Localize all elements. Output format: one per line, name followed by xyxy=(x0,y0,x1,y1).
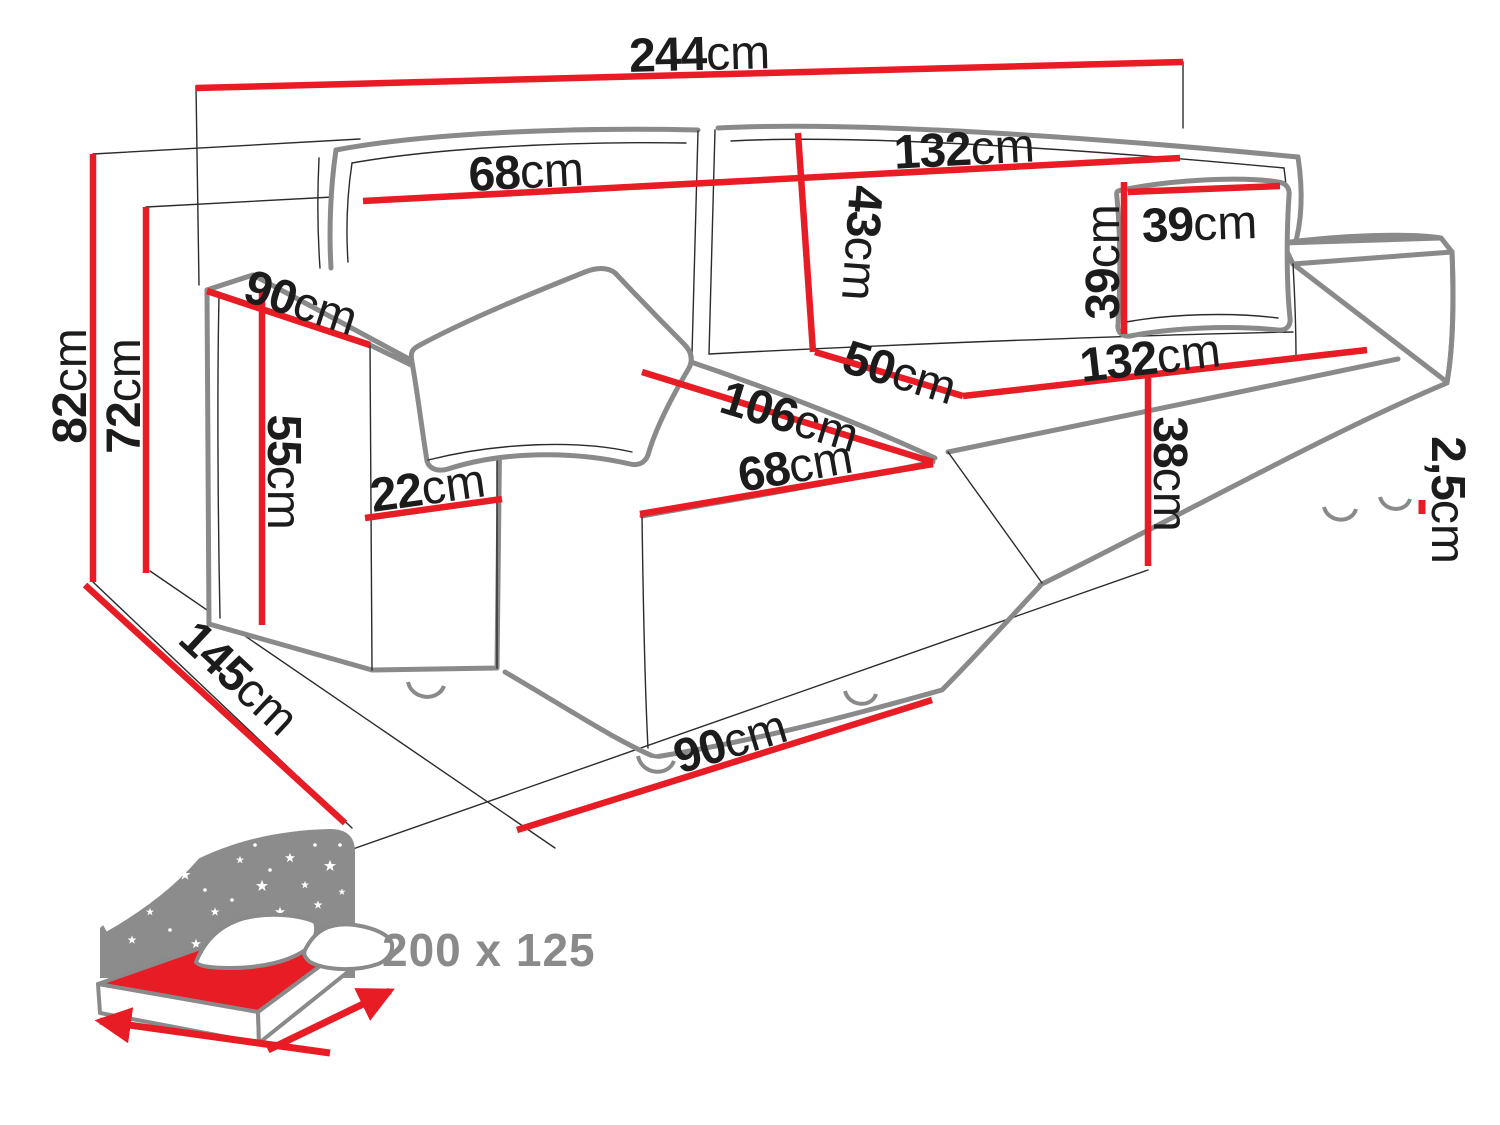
deco-shape xyxy=(146,197,333,207)
label-total-width: 244cm xyxy=(628,26,770,83)
label-backrest-left-width: 68cm xyxy=(467,143,585,202)
deco-shape xyxy=(347,163,352,262)
throw-pillow-left xyxy=(411,269,691,471)
deco-shape xyxy=(642,516,648,748)
deco-shape xyxy=(196,86,199,285)
deco-shape xyxy=(948,452,1042,583)
label-total-height: 82cm xyxy=(44,328,97,443)
label-back-height: 72cm xyxy=(98,338,151,453)
deco-shape xyxy=(338,843,342,847)
deco-shape xyxy=(1324,507,1356,520)
sofa-dimension-drawing: 244cm 68cm 132cm 43cm 50cm 132cm 106cm 6… xyxy=(0,0,1500,1125)
label-seat-height: 38cm xyxy=(1143,416,1196,531)
deco-shape xyxy=(230,898,234,902)
base-bottom-right xyxy=(1040,383,1447,585)
deco-shape xyxy=(203,888,207,892)
label-chaise-width: 68cm xyxy=(734,431,857,503)
dimension-diagram: 244cm 68cm 132cm 43cm 50cm 132cm 106cm 6… xyxy=(0,0,1500,1125)
label-leg-height: 2,5cm xyxy=(1421,436,1474,564)
sleeping-function-icon xyxy=(98,829,392,1053)
deco-shape xyxy=(93,139,360,154)
label-armrest-height: 55cm xyxy=(257,414,310,529)
backrest-left-edge xyxy=(330,150,336,268)
label-pillow-height: 39cm xyxy=(1077,204,1130,319)
deco-shape xyxy=(1293,264,1296,358)
deco-shape xyxy=(318,158,320,268)
label-seat-width: 132cm xyxy=(1077,324,1223,393)
backrest-right-edge xyxy=(1294,157,1301,248)
label-chaise-floor-width: 90cm xyxy=(668,700,794,784)
label-backrest-height: 43cm xyxy=(831,184,892,303)
deco-shape xyxy=(692,131,698,354)
label-pillow-width: 39cm xyxy=(1141,196,1258,253)
bed-pillow-right xyxy=(304,924,392,969)
label-backrest-right-width: 132cm xyxy=(892,119,1036,179)
dim-line-backrest-height xyxy=(798,133,813,352)
deco-shape xyxy=(168,928,172,932)
deco-shape xyxy=(709,130,715,354)
deco-shape xyxy=(845,691,876,704)
deco-shape xyxy=(268,868,272,872)
deco-shape xyxy=(1380,497,1410,509)
sleeping-area-label: 200 x 125 xyxy=(382,924,596,976)
deco-shape xyxy=(408,682,444,697)
deco-shape xyxy=(313,843,317,847)
deco-shape xyxy=(253,843,257,847)
